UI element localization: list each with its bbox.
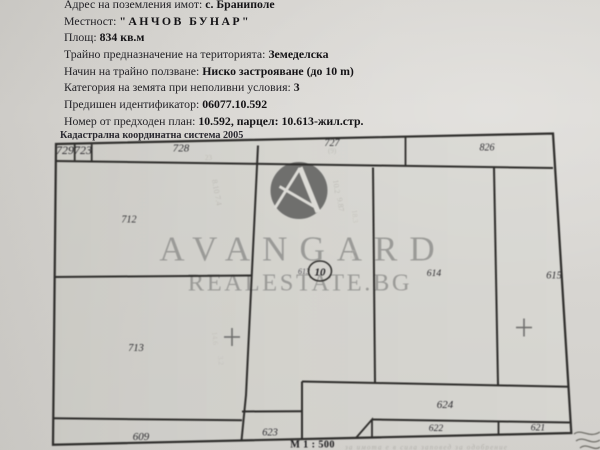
svg-text:18.3: 18.3 xyxy=(350,209,360,223)
svg-text:723: 723 xyxy=(74,143,92,157)
svg-text:727: 727 xyxy=(325,138,341,149)
svg-text:14.6: 14.6 xyxy=(210,331,220,345)
svg-text:3.2: 3.2 xyxy=(216,355,226,365)
svg-text:623: 623 xyxy=(262,428,278,439)
svg-text:609: 609 xyxy=(133,431,150,443)
svg-text:624: 624 xyxy=(437,399,454,411)
svg-text:621: 621 xyxy=(531,422,545,433)
svg-text:М 1 : 500: М 1 : 500 xyxy=(290,439,335,450)
svg-text:7.4: 7.4 xyxy=(213,195,224,206)
svg-text:728: 728 xyxy=(173,143,190,155)
svg-text:AVANGARD: AVANGARD xyxy=(159,230,446,269)
svg-text:23: 23 xyxy=(205,154,213,162)
svg-text:712: 712 xyxy=(122,214,137,225)
svg-text:за имота е в сила заповед за о: за имота е в сила заповед за одобрение xyxy=(344,444,508,450)
svg-text:10: 10 xyxy=(315,267,327,279)
svg-text:826: 826 xyxy=(480,143,495,154)
svg-text:713: 713 xyxy=(128,343,144,354)
svg-text:729: 729 xyxy=(56,143,74,157)
svg-text:622: 622 xyxy=(429,423,444,434)
svg-text:614: 614 xyxy=(427,268,442,279)
svg-text:615: 615 xyxy=(546,271,562,282)
svg-text:6.2: 6.2 xyxy=(348,249,358,259)
